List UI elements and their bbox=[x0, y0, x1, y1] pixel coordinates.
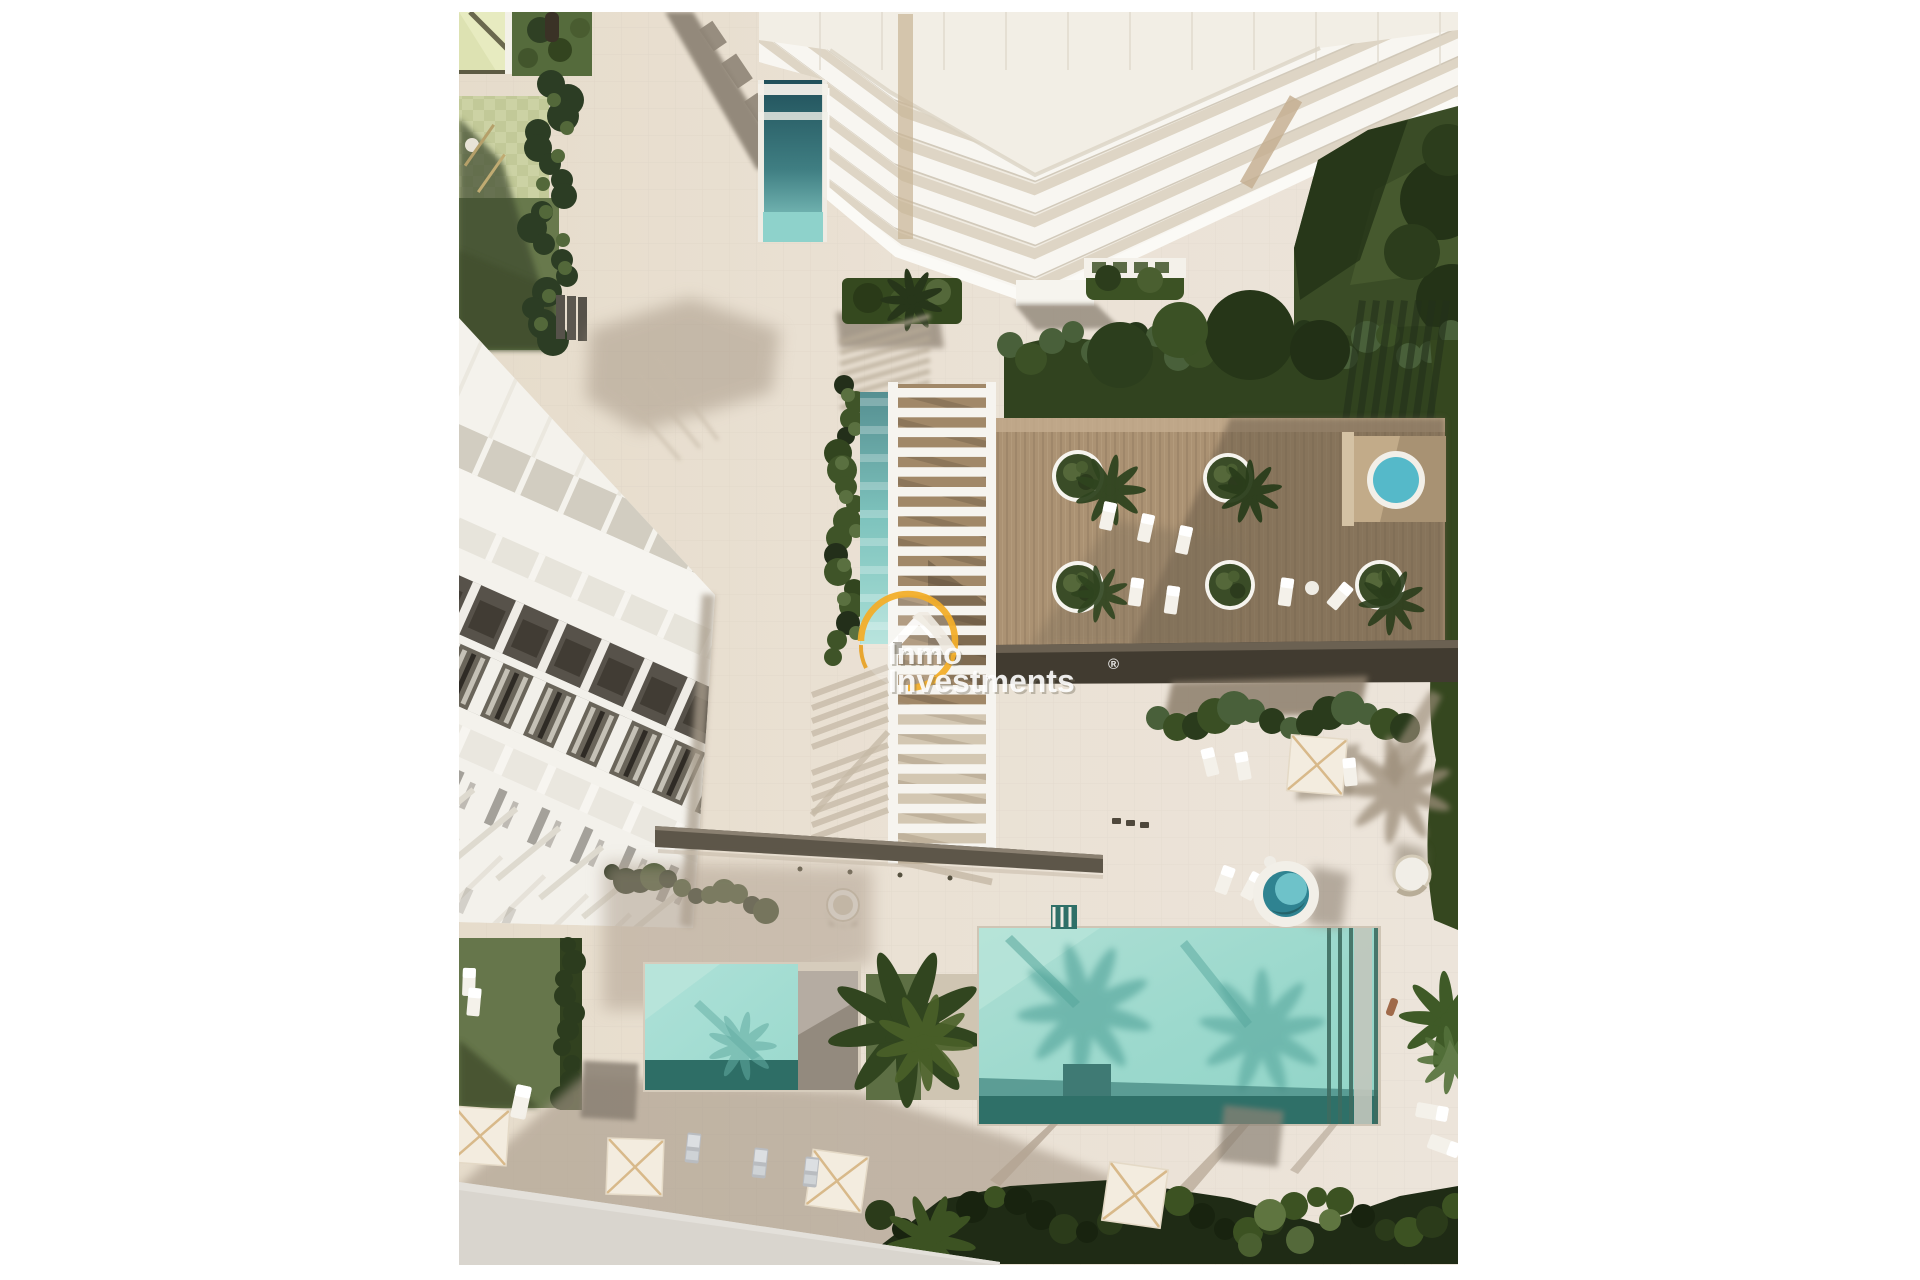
svg-text:®: ® bbox=[1108, 656, 1119, 673]
svg-text:Investments: Investments bbox=[888, 663, 1075, 699]
